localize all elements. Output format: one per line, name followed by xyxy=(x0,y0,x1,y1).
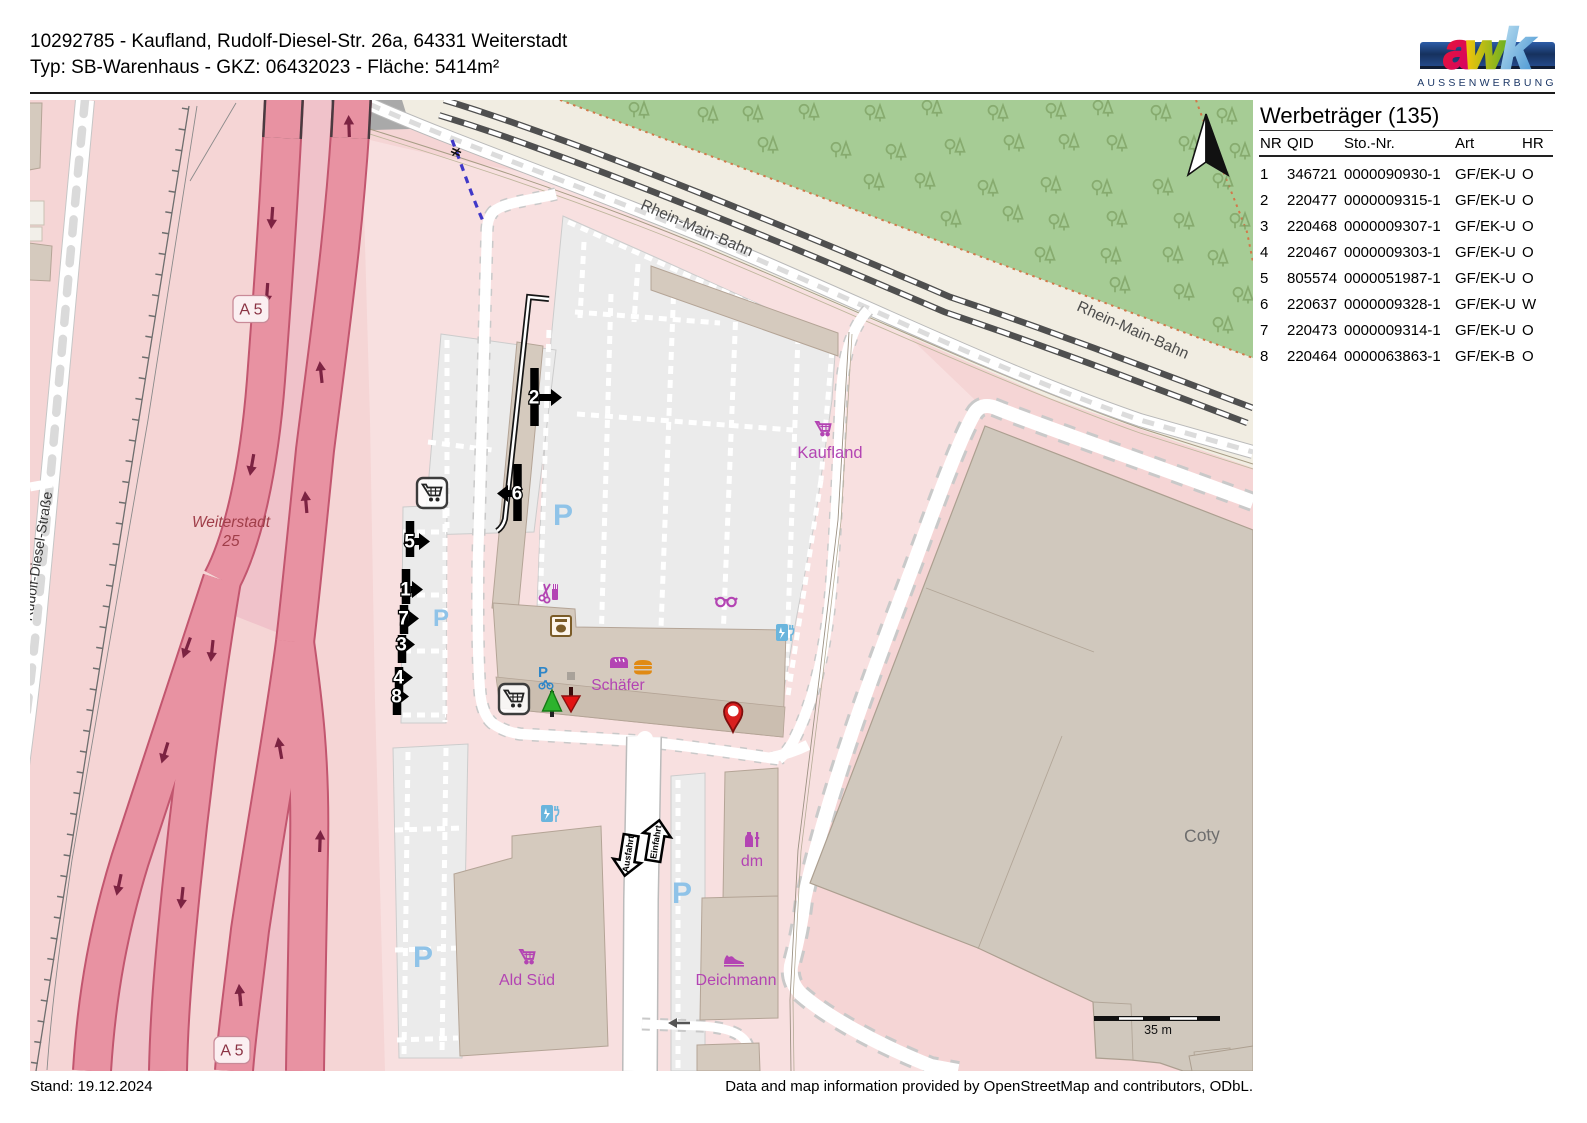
svg-text:P: P xyxy=(433,605,449,632)
svg-text:8: 8 xyxy=(391,687,402,708)
svg-text:7: 7 xyxy=(398,609,409,630)
svg-text:dm: dm xyxy=(741,853,763,870)
svg-text:Weiterstadt: Weiterstadt xyxy=(192,514,271,531)
svg-text:Kaufland: Kaufland xyxy=(797,444,862,462)
svg-text:35 m: 35 m xyxy=(1144,1023,1172,1037)
svg-text:P: P xyxy=(538,664,548,681)
svg-text:Ald Süd: Ald Süd xyxy=(499,972,555,989)
svg-text:A 5: A 5 xyxy=(220,1043,243,1060)
svg-text:A 5: A 5 xyxy=(239,302,262,319)
svg-text:Schäfer: Schäfer xyxy=(591,677,644,694)
svg-text:2: 2 xyxy=(529,388,540,409)
svg-text:Coty: Coty xyxy=(1183,824,1221,846)
svg-text:3: 3 xyxy=(396,635,407,656)
svg-text:k: k xyxy=(1501,18,1536,81)
svg-text:P: P xyxy=(672,877,692,910)
svg-text:4: 4 xyxy=(393,668,404,689)
svg-text:Deichmann: Deichmann xyxy=(696,972,777,989)
svg-text:5: 5 xyxy=(404,532,415,553)
svg-text:6: 6 xyxy=(512,484,523,505)
svg-text:P: P xyxy=(553,499,573,532)
svg-text:P: P xyxy=(413,941,433,974)
svg-text:25: 25 xyxy=(221,533,240,550)
svg-text:AUSSENWERBUNG: AUSSENWERBUNG xyxy=(1417,77,1557,89)
svg-text:1: 1 xyxy=(400,580,411,601)
